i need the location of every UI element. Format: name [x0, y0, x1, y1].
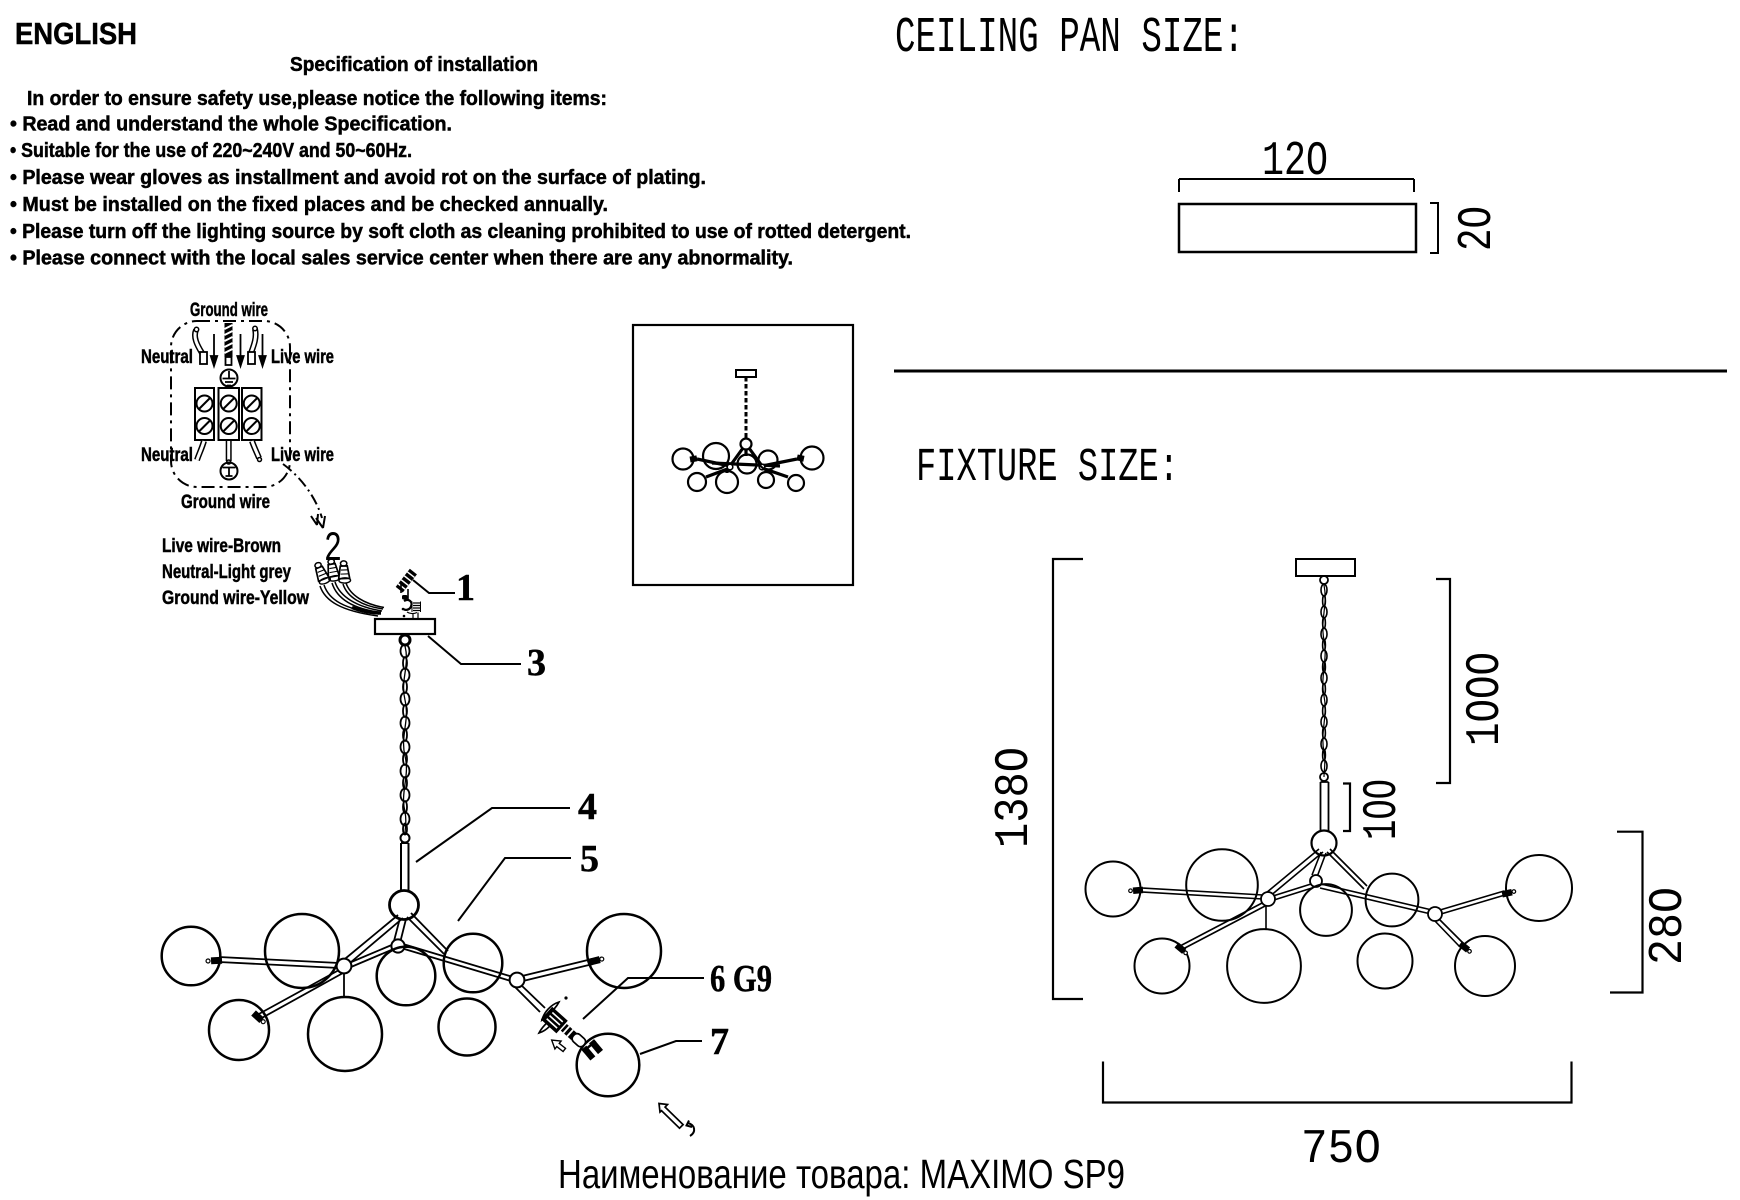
svg-text:• Must be installed on the fix: • Must be installed on the fixed places … — [10, 194, 608, 216]
svg-text:Ground wire-Yellow: Ground wire-Yellow — [162, 588, 309, 609]
svg-text:• Please connect with the loca: • Please connect with the local sales se… — [10, 248, 793, 270]
svg-text:2: 2 — [324, 525, 342, 573]
svg-text:4: 4 — [578, 786, 597, 828]
svg-text:In order to ensure safety use,: In order to ensure safety use,please not… — [27, 88, 607, 110]
svg-text:• Please wear gloves as instal: • Please wear gloves as installment and … — [10, 167, 706, 189]
svg-text:Live wire: Live wire — [271, 347, 334, 368]
svg-text:FIXTURE SIZE:: FIXTURE SIZE: — [916, 442, 1179, 495]
svg-text:1: 1 — [456, 567, 475, 609]
svg-text:• Suitable for the use of 220~: • Suitable for the use of 220~240V and 5… — [10, 140, 412, 162]
svg-text:• Read and understand the whol: • Read and understand the whole Specific… — [10, 114, 452, 136]
svg-text:CEILING PAN SIZE:: CEILING PAN SIZE: — [895, 10, 1244, 67]
svg-text:Neutral-Light grey: Neutral-Light grey — [162, 562, 291, 583]
svg-text:• Please turn off the lighting: • Please turn off the lighting source by… — [10, 221, 911, 243]
svg-text:Live wire-Brown: Live wire-Brown — [162, 536, 281, 557]
svg-text:Neutral: Neutral — [141, 445, 193, 466]
svg-text:1OO: 1OO — [1356, 779, 1410, 840]
svg-text:Neutral: Neutral — [141, 347, 193, 368]
svg-text:Ground wire: Ground wire — [190, 300, 268, 321]
svg-text:75O: 75O — [1301, 1123, 1381, 1177]
svg-text:ENGLISH: ENGLISH — [15, 16, 137, 51]
svg-text:1OOO: 1OOO — [1459, 652, 1513, 746]
svg-text:138O: 138O — [988, 747, 1042, 848]
svg-text:6 G9: 6 G9 — [710, 958, 772, 1000]
svg-text:12O: 12O — [1262, 135, 1328, 189]
svg-text:7: 7 — [710, 1021, 729, 1063]
svg-text:3: 3 — [527, 642, 546, 684]
svg-text:5: 5 — [580, 838, 599, 880]
svg-text:Наименование товара: MAXIMO SP: Наименование товара: MAXIMO SP9 — [558, 1151, 1125, 1197]
svg-text:28O: 28O — [1642, 887, 1696, 965]
svg-text:Live wire: Live wire — [271, 445, 334, 466]
svg-text:2O: 2O — [1451, 206, 1505, 251]
svg-text:Ground wire: Ground wire — [181, 492, 270, 513]
svg-text:Specification of installation: Specification of installation — [290, 54, 538, 76]
